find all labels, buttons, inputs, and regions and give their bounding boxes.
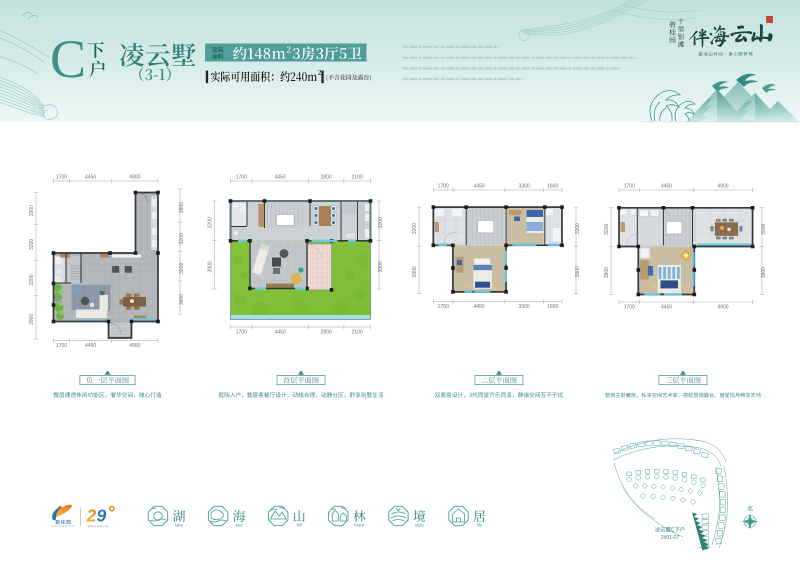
svg-text:forest: forest <box>354 523 365 528</box>
svg-text:lake: lake <box>175 523 183 528</box>
svg-text:4900: 4900 <box>717 305 728 311</box>
svg-text:3200: 3200 <box>208 217 214 228</box>
svg-text:3200: 3200 <box>179 263 185 274</box>
svg-text:3200: 3200 <box>29 274 35 285</box>
svg-text:1700: 1700 <box>624 184 635 190</box>
svg-text:1600: 1600 <box>547 184 558 190</box>
svg-text:3900: 3900 <box>412 266 418 277</box>
svg-text:3200: 3200 <box>29 239 35 250</box>
svg-text:4450: 4450 <box>275 330 286 336</box>
svg-text:life: life <box>477 523 483 528</box>
svg-text:hill: hill <box>297 523 302 528</box>
svg-text:3200: 3200 <box>378 217 384 228</box>
svg-text:1700: 1700 <box>236 330 247 336</box>
svg-text:3900: 3900 <box>29 314 35 325</box>
svg-text:1700: 1700 <box>624 305 635 311</box>
svg-text:4450: 4450 <box>275 175 286 181</box>
svg-text:C: C <box>50 29 86 89</box>
svg-text:4450: 4450 <box>85 175 96 181</box>
svg-text:3900: 3900 <box>575 266 581 277</box>
svg-text:3200: 3200 <box>604 224 610 235</box>
svg-text:1600: 1600 <box>547 304 558 310</box>
svg-text:2100: 2100 <box>352 330 363 336</box>
svg-text:2100: 2100 <box>352 175 363 181</box>
svg-text:4450: 4450 <box>85 343 96 349</box>
svg-text:sea: sea <box>236 523 243 528</box>
svg-text:2: 2 <box>86 505 97 525</box>
svg-text:3900: 3900 <box>604 267 610 278</box>
svg-text:4450: 4450 <box>661 305 672 311</box>
svg-text:2900: 2900 <box>29 205 35 216</box>
svg-text:2800: 2800 <box>321 175 332 181</box>
svg-text:9: 9 <box>97 505 107 525</box>
svg-text:1700: 1700 <box>438 184 449 190</box>
svg-text:state: state <box>415 523 425 528</box>
svg-text:3900: 3900 <box>378 261 384 272</box>
svg-text:4450: 4450 <box>473 304 484 310</box>
svg-text:3600: 3600 <box>179 202 185 213</box>
svg-text:3200: 3200 <box>761 224 767 235</box>
svg-text:1700: 1700 <box>236 175 247 181</box>
svg-text:4900: 4900 <box>717 184 728 190</box>
svg-text:3900: 3900 <box>761 267 767 278</box>
svg-text:3900: 3900 <box>208 261 214 272</box>
svg-text:1700: 1700 <box>56 175 67 181</box>
svg-text:4900: 4900 <box>129 175 140 181</box>
svg-text:3600: 3600 <box>179 294 185 305</box>
svg-text:2800: 2800 <box>321 330 332 336</box>
svg-text:2#01-07: 2#01-07 <box>661 535 680 541</box>
svg-text:3200: 3200 <box>575 223 581 234</box>
svg-text:1700: 1700 <box>438 304 449 310</box>
svg-text:3200: 3200 <box>412 223 418 234</box>
svg-text:4450: 4450 <box>473 184 484 190</box>
svg-text:1700: 1700 <box>56 343 67 349</box>
svg-text:3300: 3300 <box>519 304 530 310</box>
svg-text:4900: 4900 <box>129 343 140 349</box>
svg-text:3300: 3300 <box>519 184 530 190</box>
svg-text:3200: 3200 <box>179 233 185 244</box>
svg-text:4450: 4450 <box>661 184 672 190</box>
